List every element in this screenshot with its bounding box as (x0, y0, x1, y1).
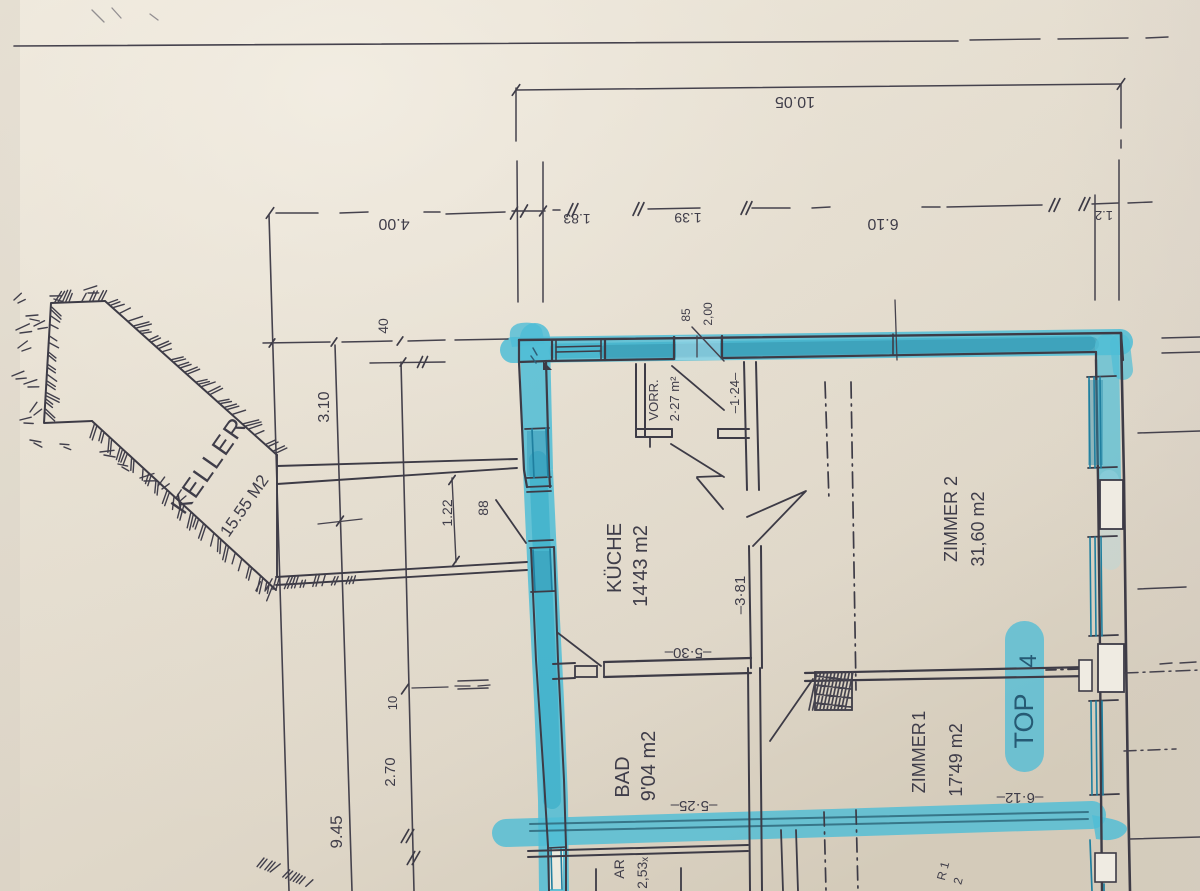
svg-text:VORR.: VORR. (646, 379, 661, 420)
svg-text:–3·81: –3·81 (732, 576, 749, 614)
svg-text:4.00: 4.00 (378, 215, 409, 232)
svg-text:10: 10 (385, 696, 400, 710)
svg-text:–5·25–: –5·25– (670, 797, 717, 814)
svg-text:KÜCHE: KÜCHE (604, 523, 626, 593)
svg-text:4: 4 (1015, 654, 1042, 667)
svg-text:2,53ₓ: 2,53ₓ (634, 857, 650, 889)
svg-text:1.22: 1.22 (439, 499, 455, 526)
svg-text:3.10: 3.10 (316, 391, 333, 422)
svg-text:14'43 m2: 14'43 m2 (630, 525, 652, 607)
svg-text:–1·24–: –1·24– (727, 372, 742, 413)
svg-text:AR: AR (611, 859, 627, 878)
svg-text:–6·12–: –6·12– (996, 789, 1043, 806)
svg-text:88: 88 (475, 500, 491, 516)
svg-text:1.2: 1.2 (1095, 208, 1113, 223)
svg-text:6.10: 6.10 (867, 215, 898, 232)
svg-text:–5·30–: –5·30– (664, 644, 711, 661)
svg-text:17'49 m2: 17'49 m2 (946, 723, 966, 797)
svg-text:BAD: BAD (612, 756, 634, 797)
svg-text:10.05: 10.05 (775, 93, 815, 110)
svg-text:ZIMMER 1: ZIMMER 1 (909, 711, 929, 794)
svg-text:2.70: 2.70 (382, 757, 399, 786)
svg-text:ZIMMER 2: ZIMMER 2 (941, 476, 961, 562)
svg-text:2,00: 2,00 (701, 302, 715, 326)
svg-text:1.39: 1.39 (674, 210, 701, 226)
svg-text:TOP: TOP (1009, 693, 1039, 748)
svg-text:85: 85 (679, 308, 693, 322)
svg-text:9'04 m2: 9'04 m2 (638, 731, 660, 802)
svg-text:1.83: 1.83 (563, 211, 590, 227)
svg-text:9.45: 9.45 (327, 815, 346, 848)
svg-text:2·27 m²: 2·27 m² (667, 376, 682, 421)
svg-text:31,60 m2: 31,60 m2 (968, 491, 988, 566)
svg-text:40: 40 (375, 318, 391, 334)
